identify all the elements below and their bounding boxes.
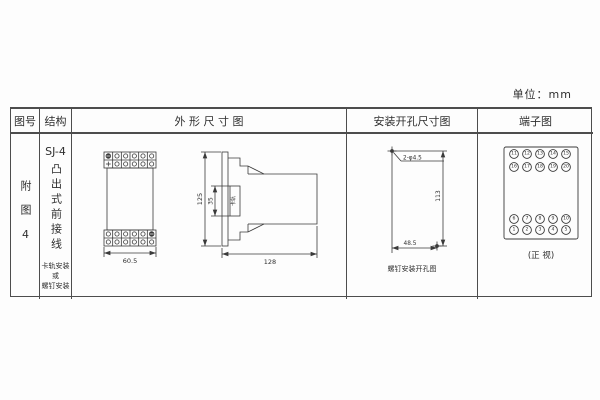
- side-view: 卡轨 125 35 128: [196, 152, 317, 266]
- terminal-screw-hole: [106, 240, 110, 244]
- structure-type-label: 凸出式前接线: [48, 163, 64, 253]
- install-drawing-cell: 2-φ4.5 113 48.5 螺钉安装开孔图: [347, 134, 478, 299]
- terminal-number: 18: [537, 164, 543, 170]
- terminal-number: 2: [526, 227, 529, 233]
- terminal-screw-hole: [115, 240, 119, 244]
- install-hole-drawing: 2-φ4.5 113 48.5 螺钉安装开孔图: [347, 134, 478, 299]
- terminal-number: 17: [524, 164, 530, 170]
- install-caption: 螺钉安装开孔图: [388, 264, 437, 273]
- terminal-number: 7: [526, 216, 529, 222]
- terminal-number: 8: [539, 216, 542, 222]
- header-structure: 结构: [40, 109, 72, 134]
- terminal-number: 20: [563, 164, 569, 170]
- terminal-number: 15: [563, 151, 569, 157]
- terminal-number: 19: [550, 164, 556, 170]
- terminal-number: 3: [539, 227, 542, 233]
- figure-number-cell: 附图4: [11, 134, 40, 299]
- relay-body-side: [228, 158, 317, 240]
- terminal-screw-hole: [115, 232, 119, 236]
- terminal-screw-hole: [124, 154, 128, 158]
- relay-body-front: [107, 168, 153, 230]
- terminal-number: 6: [513, 216, 516, 222]
- terminal-drawing-cell: 1112131415161718192067891012345 (正 视): [478, 134, 593, 299]
- catalog-page: { "unit_label": "单位：mm", "table": { "hea…: [0, 0, 600, 400]
- spec-table: 图号 结构 外 形 尺 寸 图 安装开孔尺寸图 端子图 附图4 SJ-4 凸出式…: [10, 107, 592, 297]
- front-flange: [222, 152, 228, 246]
- hole-callout: 2-φ4.5: [403, 156, 422, 162]
- terminal-number: 1: [513, 227, 516, 233]
- terminal-screw-hole: [150, 162, 154, 166]
- header-outline: 外 形 尺 寸 图: [72, 109, 347, 134]
- terminal-screw-hole: [124, 240, 128, 244]
- terminal-screw-hole: [141, 240, 145, 244]
- unit-label: 单位：mm: [513, 86, 572, 102]
- dim-rail-slot: 35: [208, 197, 215, 205]
- rail-slot-label: 卡轨: [230, 196, 237, 206]
- dim-front-width: 60.5: [123, 257, 137, 265]
- mounting-note-line2: 或: [42, 271, 70, 281]
- terminal-number: 4: [552, 227, 555, 233]
- terminal-screw-hole: [115, 162, 119, 166]
- terminal-screw-hole: [132, 154, 136, 158]
- outline-dimension-drawing: 60.5 卡轨 125 35: [72, 134, 347, 299]
- mounting-note: 卡轨安装 或 螺钉安装: [42, 261, 70, 291]
- terminal-number: 5: [565, 227, 568, 233]
- outline-drawing-cell: 60.5 卡轨 125 35: [72, 134, 347, 299]
- terminal-number: 16: [511, 164, 517, 170]
- terminal-number: 10: [563, 216, 569, 222]
- structure-cell: SJ-4 凸出式前接线 卡轨安装 或 螺钉安装: [40, 134, 72, 299]
- terminal-screw-hole: [141, 154, 145, 158]
- terminal-screw-hole: [106, 232, 110, 236]
- mounting-note-line1: 卡轨安装: [42, 261, 70, 271]
- terminal-number: 13: [537, 151, 543, 157]
- dim-height: 125: [196, 193, 204, 205]
- terminal-screw-hole: [141, 162, 145, 166]
- header-terminal: 端子图: [478, 109, 593, 134]
- terminal-number: 11: [511, 151, 517, 157]
- terminal-screw-hole: [141, 232, 145, 236]
- figure-number-label: 附图4: [17, 180, 33, 254]
- terminal-block-outline: [504, 147, 578, 239]
- dim-hole-vertical: 113: [435, 190, 442, 202]
- terminal-number: 12: [524, 151, 530, 157]
- terminal-screw-hole: [132, 240, 136, 244]
- relay-model-label: SJ-4: [45, 146, 66, 157]
- front-view: 60.5: [104, 152, 156, 265]
- terminal-screw-hole: [115, 154, 119, 158]
- terminal-screw-hole: [124, 232, 128, 236]
- terminal-caption: (正 视): [528, 250, 554, 261]
- header-install: 安装开孔尺寸图: [347, 109, 478, 134]
- mounting-note-line3: 螺钉安装: [42, 281, 70, 291]
- terminal-screw-hole: [150, 240, 154, 244]
- terminal-screw-hole: [132, 232, 136, 236]
- terminal-diagram: 1112131415161718192067891012345 (正 视): [478, 134, 593, 299]
- terminal-screw-hole: [150, 154, 154, 158]
- terminal-screw-hole: [124, 162, 128, 166]
- header-figure-no: 图号: [11, 109, 40, 134]
- dim-depth: 128: [264, 258, 276, 266]
- dim-hole-horizontal: 48.5: [404, 241, 417, 247]
- terminal-number: 9: [552, 216, 555, 222]
- terminal-screw-hole: [132, 162, 136, 166]
- terminal-number: 14: [550, 151, 556, 157]
